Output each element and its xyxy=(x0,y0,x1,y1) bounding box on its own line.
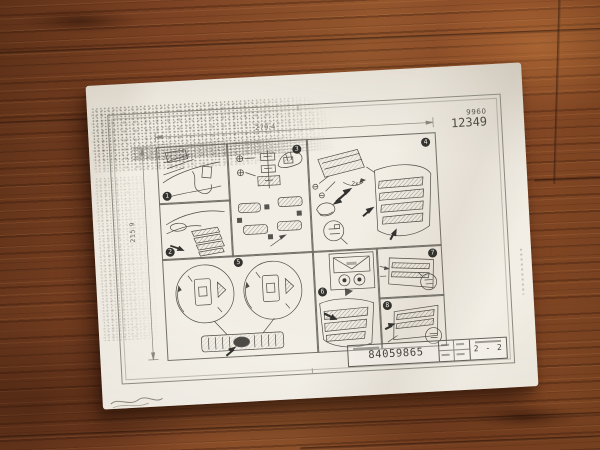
badge-coin-icon xyxy=(339,274,366,286)
wood-grain-knot xyxy=(470,405,580,429)
grille-insert-drawing xyxy=(317,149,364,177)
part-number-cell: 84059865 xyxy=(348,341,439,366)
part-number: 84059865 xyxy=(368,347,424,362)
sheet-codes: 9960 12349 xyxy=(450,107,487,131)
detail-circle xyxy=(174,263,235,324)
instruction-sheet-paper: 279.4 215.9 9960 12349 xyxy=(86,62,539,409)
clip-icon xyxy=(238,196,304,234)
instruction-panel-5: 5 xyxy=(162,251,319,361)
hatched-trim-piece xyxy=(165,150,188,163)
quantity-label: 2x xyxy=(351,180,359,187)
revision-grid xyxy=(438,340,471,362)
drawing-border-frame: 279.4 215.9 9960 12349 xyxy=(107,94,515,385)
plank-end-joint xyxy=(553,0,561,184)
sheet-number: 2 - 2 xyxy=(474,343,504,354)
sheet-number-cell: 2 - 2 xyxy=(470,338,507,360)
hand-icon xyxy=(277,151,302,168)
torn-corner xyxy=(108,391,165,412)
plank-seam xyxy=(534,176,600,182)
screw-icon xyxy=(237,156,244,176)
wood-grain-knot xyxy=(20,8,140,34)
instruction-panel-6: 6 xyxy=(312,247,383,352)
plank-seam xyxy=(300,435,600,450)
instruction-panel-1: 1 xyxy=(156,143,231,205)
instruction-panel-2: 2 xyxy=(159,199,234,261)
instruction-panel-3: 3 xyxy=(226,139,314,257)
print-code-marks xyxy=(520,249,524,295)
emblem-kit-drawing xyxy=(313,249,382,352)
height-dimension-label: 215.9 xyxy=(128,222,137,243)
magnifier-detail-icon xyxy=(323,220,347,245)
instruction-panel-7: 7 xyxy=(376,244,445,299)
bold-arrow-icon xyxy=(385,323,396,330)
width-dimension-label: 279.4 xyxy=(255,123,276,132)
envelope-icon xyxy=(333,256,370,273)
clip-detail-drawing xyxy=(163,252,318,360)
sheet-code: 12349 xyxy=(451,115,488,131)
fastener-kit-drawing xyxy=(227,140,313,256)
grille-install-drawing xyxy=(307,133,441,252)
screw-icon xyxy=(313,184,325,199)
hand-icon xyxy=(316,202,335,216)
instruction-panel-4: 2x 4 xyxy=(306,132,442,253)
